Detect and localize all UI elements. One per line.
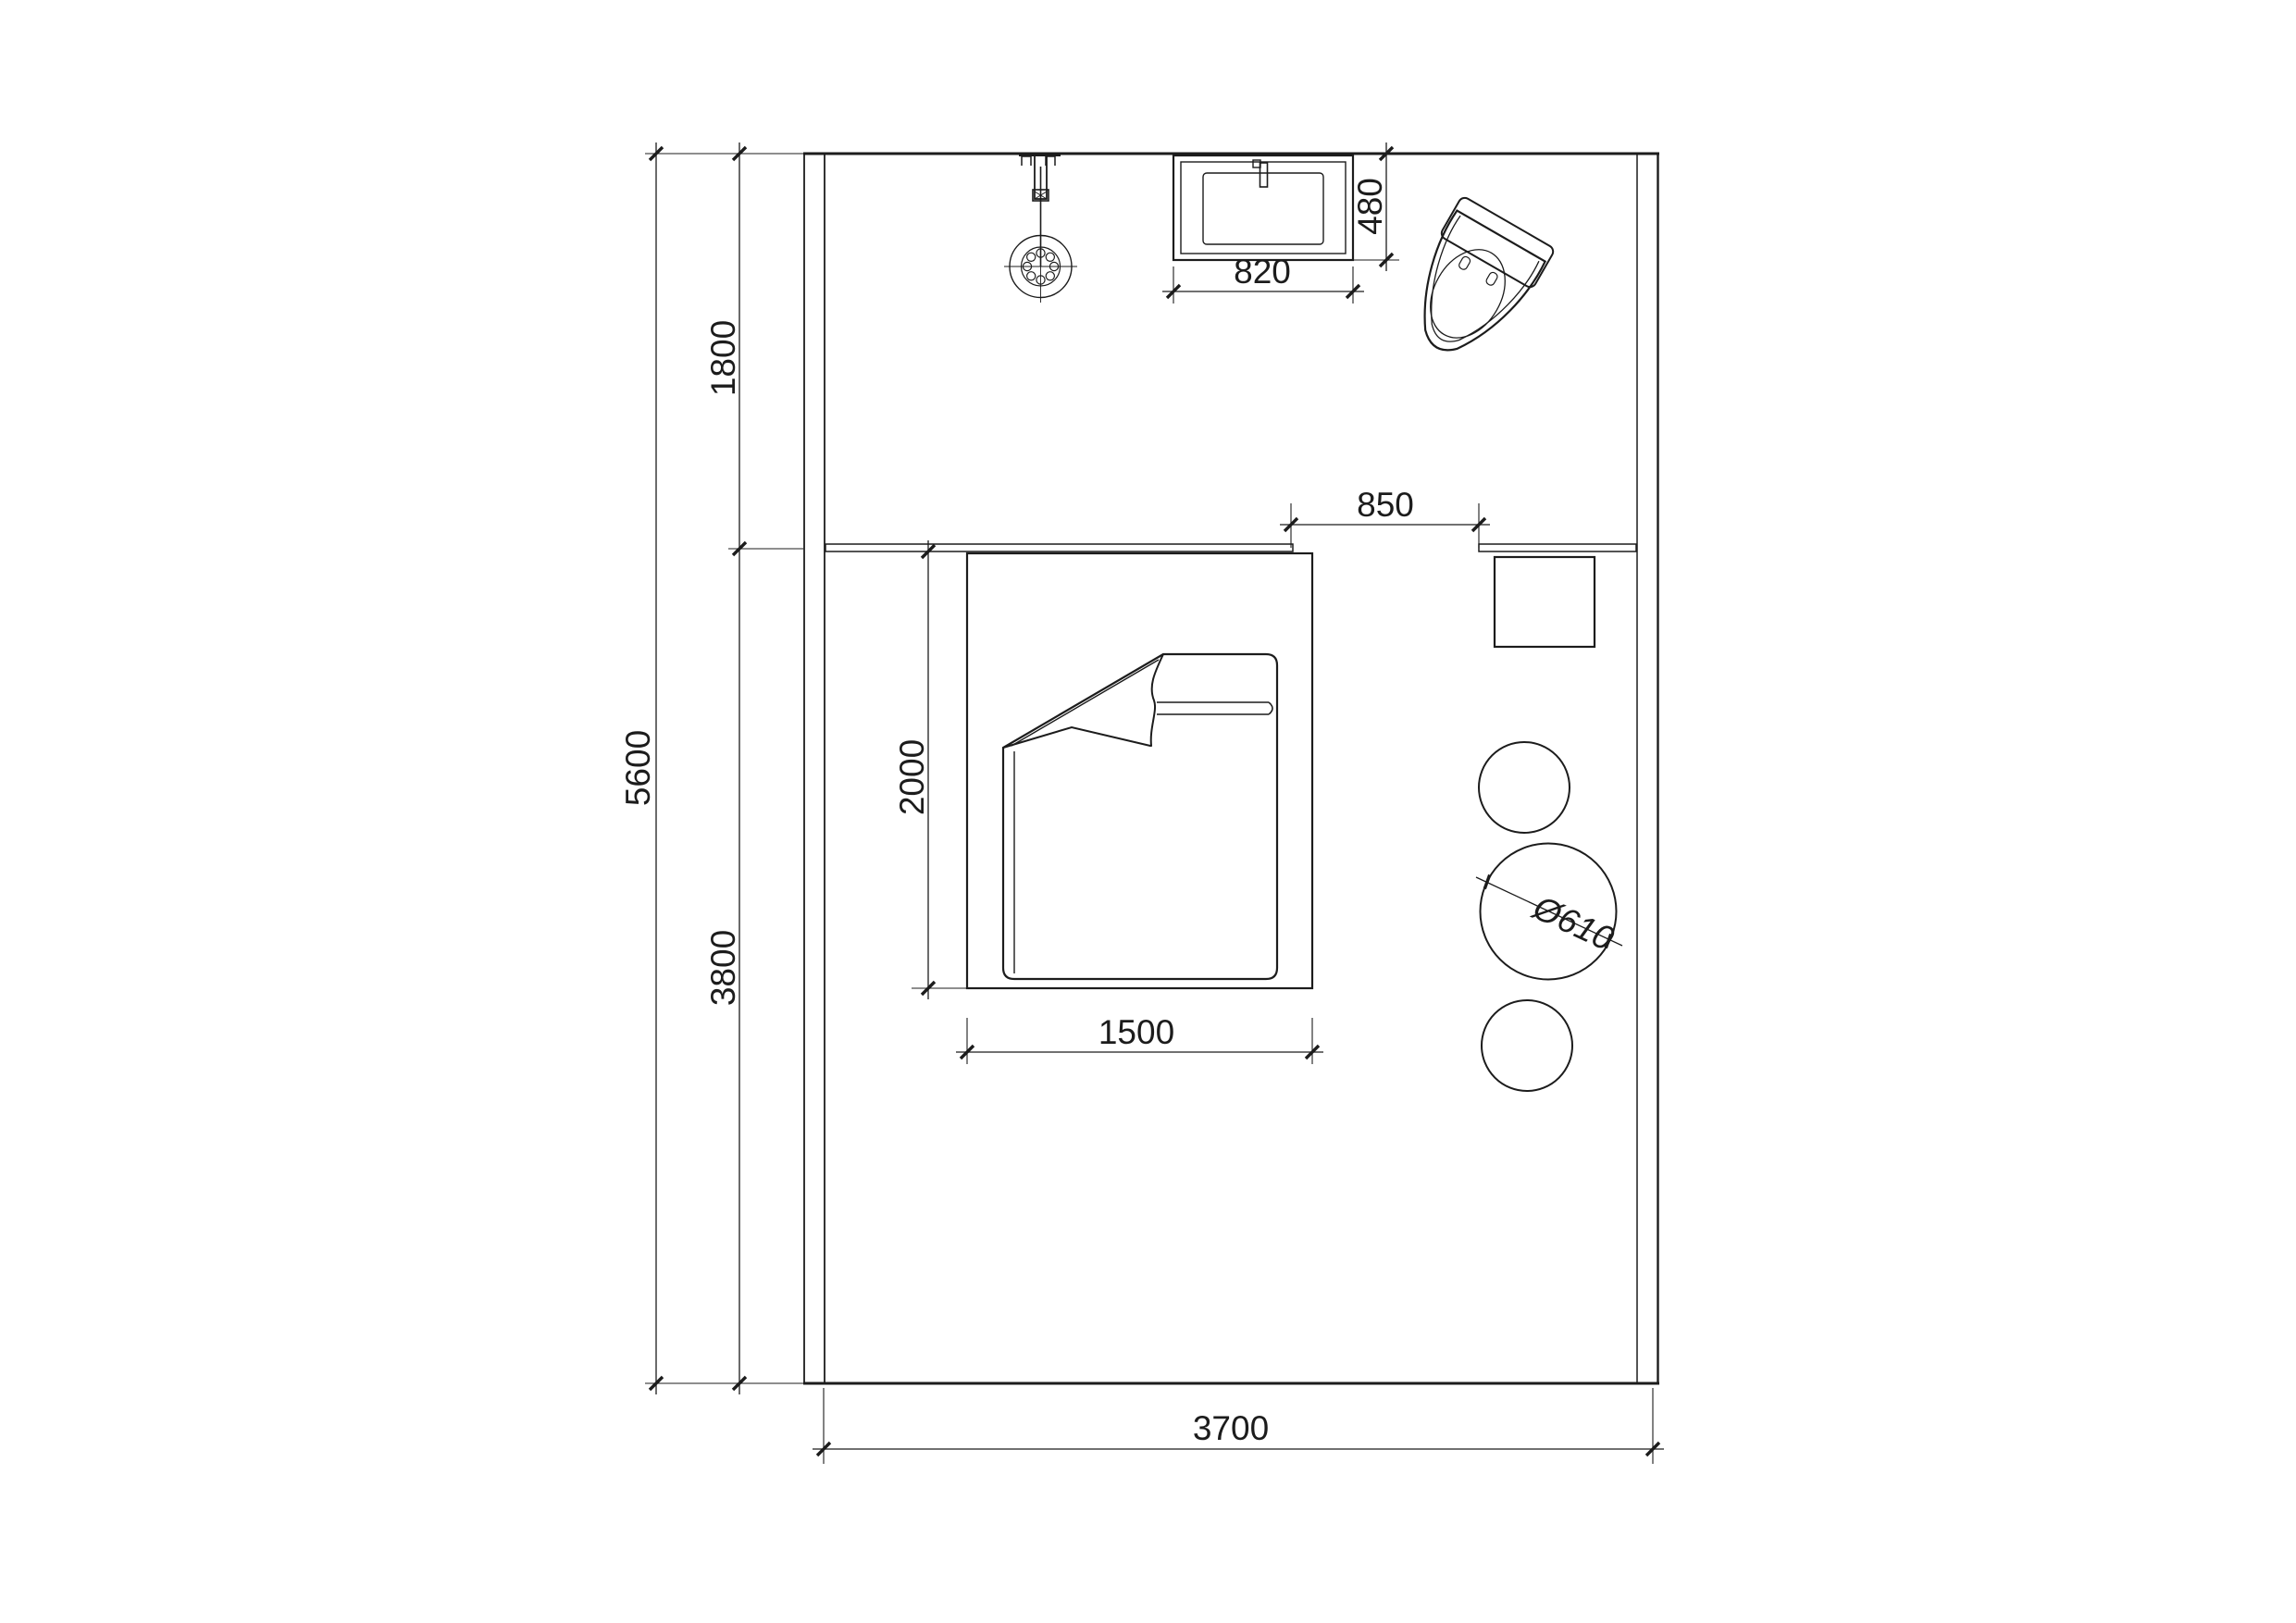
floor-plan-canvas: 5600 1800 3800 3700 2000 [0,0,2296,1623]
wash-basin [1173,155,1353,260]
dim-bed-length: 2000 [893,540,967,999]
ledge-right-segment [1479,544,1636,551]
dim-label-850: 850 [1357,486,1414,524]
floor-plan-drawing: 5600 1800 3800 3700 2000 [0,0,2296,1623]
toilet-bowl-outer [1392,210,1545,373]
basin-bowl [1203,173,1323,244]
bedside-table [1495,557,1595,647]
blanket-fold-underline [1011,660,1159,746]
headboard-ledge [825,544,1636,551]
dim-label-1800: 1800 [704,320,742,396]
dim-label-diameter: Ø610 [1526,887,1620,958]
basin-rim [1181,162,1346,254]
dim-table-diameter: Ø610 [1476,875,1622,959]
pillow-right [1148,567,1307,659]
toilet [1390,195,1555,374]
dim-label-5600: 5600 [619,730,657,806]
stool-small-top [1479,742,1570,833]
dim-basin-depth: 480 [1351,142,1399,271]
double-bed [967,553,1312,988]
exterior-walls [803,154,1659,1383]
dim-label-480: 480 [1351,178,1389,235]
dim-passage-gap: 850 [1280,486,1490,548]
dim-label-820: 820 [1234,253,1291,291]
blanket-sheet-band [1157,702,1272,714]
bed-frame [967,553,1312,988]
pendant-hook-left [1022,156,1031,166]
dim-label-2000: 2000 [893,739,931,815]
ledge-left-segment [825,544,1293,551]
dim-total-height: 5600 [619,142,663,1394]
dim-bed-width: 1500 [956,1013,1323,1064]
dim-label-1500: 1500 [1098,1013,1174,1051]
pendant-light [1004,155,1077,303]
dim-label-3700: 3700 [1193,1409,1269,1447]
dim-room-width: 3700 [813,1388,1664,1464]
blanket-sheet-edge [1151,654,1163,746]
folded-blanket [1003,654,1277,979]
dim-label-3800: 3800 [704,930,742,1006]
dim-zone-heights: 1800 3800 [704,142,746,1394]
pillow-left [974,567,1133,659]
stool-small-bottom [1482,1000,1572,1091]
